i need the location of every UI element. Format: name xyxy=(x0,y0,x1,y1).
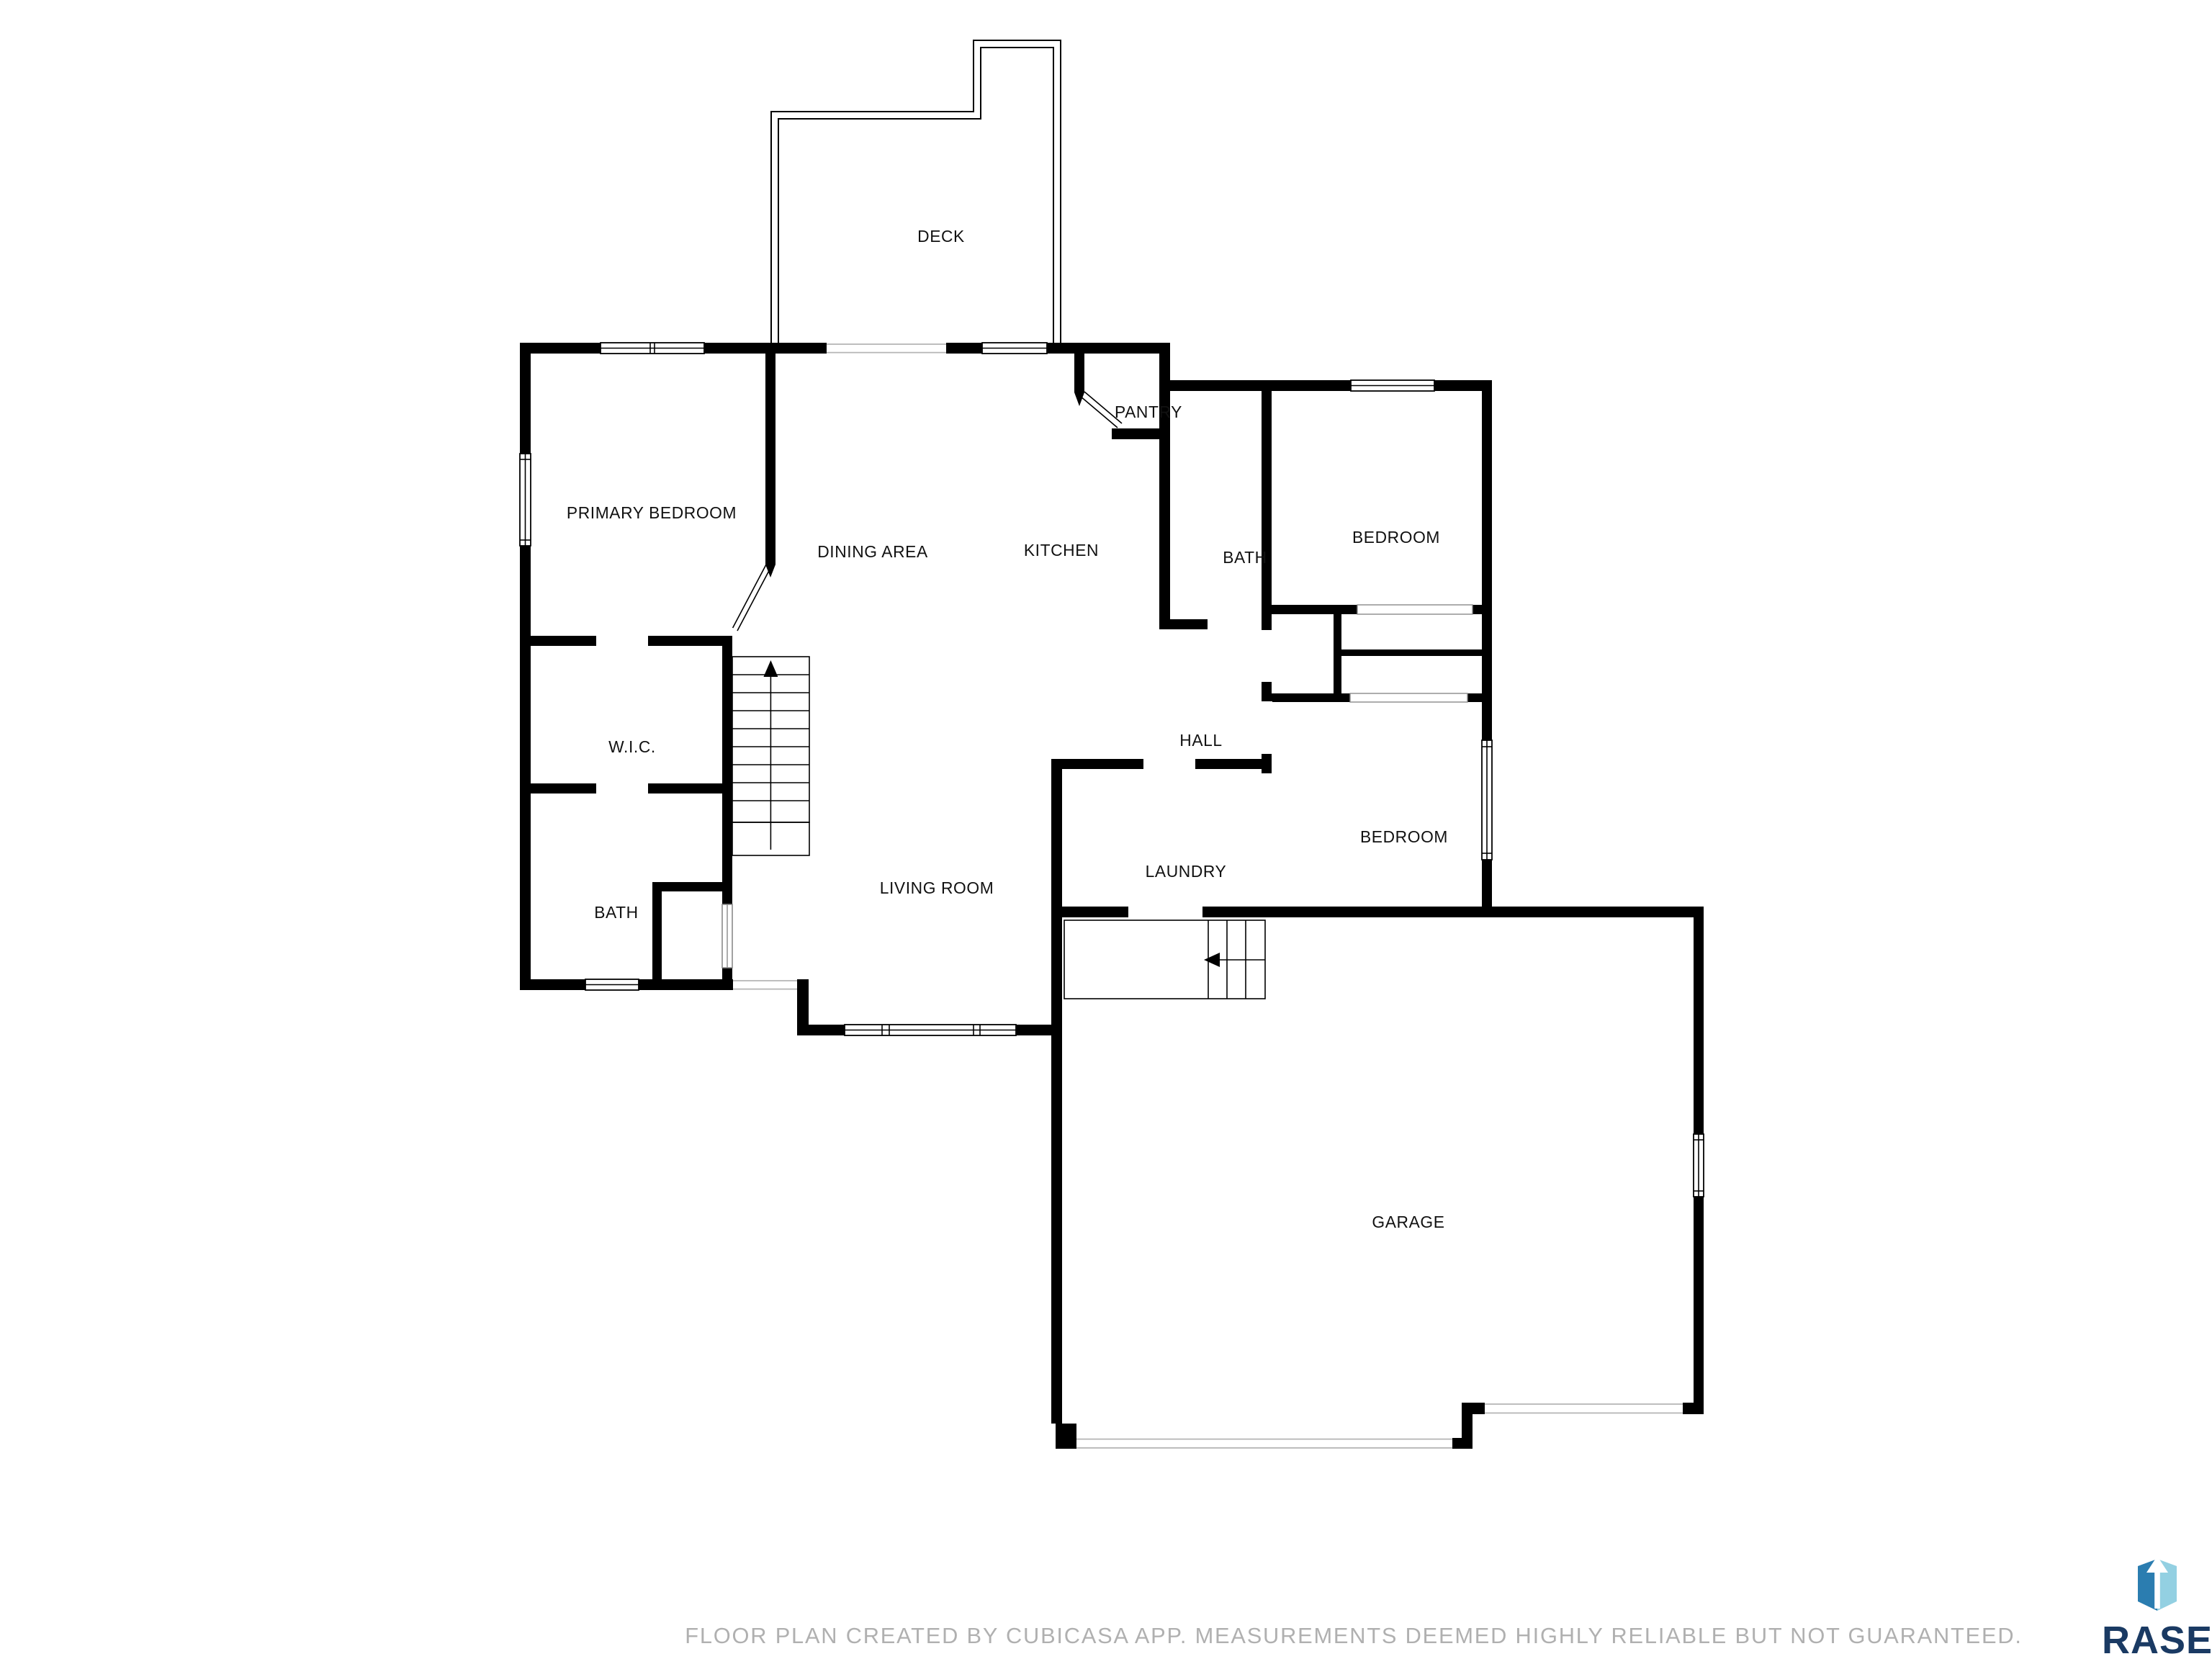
stairs-up-arrow xyxy=(763,660,778,677)
shower-door xyxy=(722,904,732,968)
interior-walls xyxy=(520,343,1492,990)
window-primary-left xyxy=(520,454,531,546)
deck-outline xyxy=(771,40,1061,351)
room-label-pantry: PANTRY xyxy=(1115,403,1182,421)
room-label-bath-lower: BATH xyxy=(594,903,639,922)
room-label-bedroom-upper: BEDROOM xyxy=(1352,528,1440,547)
room-label-deck: DECK xyxy=(917,227,965,246)
window-bedroom-right xyxy=(1482,740,1492,860)
front-door-opening xyxy=(733,979,797,991)
stairs-down xyxy=(1064,920,1265,999)
room-label-garage: GARAGE xyxy=(1372,1213,1444,1231)
room-label-living-room: LIVING ROOM xyxy=(880,878,994,897)
stairs-up xyxy=(732,657,809,855)
window-bedroom-top xyxy=(1351,380,1434,391)
room-label-dining-area: DINING AREA xyxy=(817,542,928,561)
room-label-bedroom-right: BEDROOM xyxy=(1360,827,1448,846)
window-kitchen-top xyxy=(982,343,1047,354)
room-label-laundry: LAUNDRY xyxy=(1146,862,1227,881)
window-garage-right xyxy=(1694,1134,1704,1197)
logo-arrow-stem xyxy=(2154,1570,2160,1609)
room-label-hall: HALL xyxy=(1179,731,1222,750)
primary-bedroom-angled-door xyxy=(733,562,772,631)
garage-door-main-opening xyxy=(1076,1437,1452,1449)
room-label-wic: W.I.C. xyxy=(608,737,656,756)
stairs-down-arrow xyxy=(1204,953,1220,967)
floor-plan-canvas: DECK PRIMARY BEDROOM DINING AREA KITCHEN… xyxy=(0,0,2212,1659)
brand-logo: RASE xyxy=(2102,1556,2212,1659)
room-label-kitchen: KITCHEN xyxy=(1024,541,1099,559)
room-label-bath-upper: BATH xyxy=(1223,548,1267,567)
deck-slider-opening xyxy=(827,342,946,354)
room-labels: DECK PRIMARY BEDROOM DINING AREA KITCHEN… xyxy=(567,227,1448,1231)
window-primary-top xyxy=(601,343,704,354)
garage-door-side-opening xyxy=(1485,1402,1683,1415)
window-bath-lower xyxy=(585,979,639,990)
footer-disclaimer: FLOOR PLAN CREATED BY CUBICASA APP. MEAS… xyxy=(685,1623,2023,1648)
brand-wordmark: RASE xyxy=(2102,1619,2212,1659)
brand-logo-icon xyxy=(2138,1556,2177,1611)
windows xyxy=(520,343,1704,1197)
room-label-primary-bedroom: PRIMARY BEDROOM xyxy=(567,503,737,522)
window-living-room xyxy=(845,1025,1016,1035)
